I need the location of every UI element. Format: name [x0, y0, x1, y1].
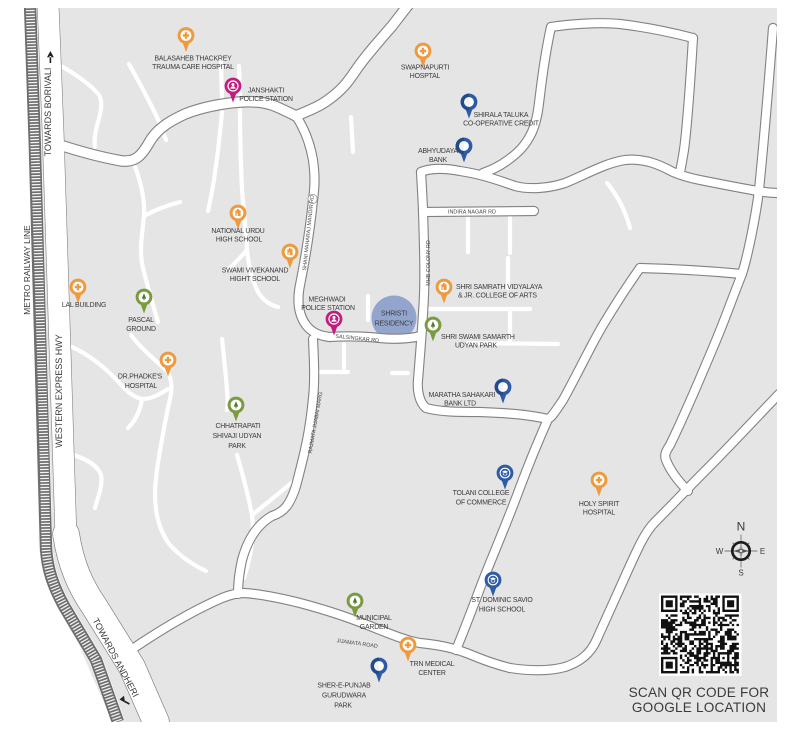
svg-text:SCAN QR CODE FOR: SCAN QR CODE FOR — [629, 685, 770, 700]
svg-text:TRN MEDICAL: TRN MEDICAL — [410, 661, 455, 668]
svg-text:POLICE STATION: POLICE STATION — [301, 305, 355, 312]
svg-text:HOSPITAL: HOSPITAL — [583, 510, 615, 517]
svg-text:HIGHT SCHOOL: HIGHT SCHOOL — [230, 276, 281, 283]
svg-text:SHRI SWAMI SAMARTH: SHRI SWAMI SAMARTH — [441, 334, 515, 341]
svg-text:HOSPTAL: HOSPTAL — [410, 73, 441, 80]
svg-text:PARK: PARK — [228, 443, 246, 450]
svg-text:MHB COLONY RD: MHB COLONY RD — [426, 240, 432, 286]
svg-text:& JR. COLLEGE OF ARTS: & JR. COLLEGE OF ARTS — [458, 293, 537, 300]
svg-text:SWAMI VIVEKANAND: SWAMI VIVEKANAND — [222, 268, 289, 275]
svg-text:SHIRALA TALUKA: SHIRALA TALUKA — [474, 112, 529, 119]
svg-text:DR.PHADKE'S: DR.PHADKE'S — [118, 374, 163, 381]
svg-text:N: N — [737, 520, 746, 534]
svg-text:GOOGLE LOCATION: GOOGLE LOCATION — [632, 700, 766, 715]
svg-text:WESTERN EXPRESS HWY: WESTERN EXPRESS HWY — [54, 334, 64, 448]
svg-text:HOLY SPIRIT: HOLY SPIRIT — [579, 501, 620, 508]
svg-text:RESIDENCY: RESIDENCY — [375, 321, 414, 328]
svg-text:BALASAHEB THACKREY: BALASAHEB THACKREY — [154, 56, 232, 63]
svg-text:GARDEN: GARDEN — [360, 624, 389, 631]
svg-text:JANSHAKTI: JANSHAKTI — [248, 88, 285, 95]
svg-text:BANK: BANK — [429, 157, 448, 164]
svg-text:TOWARDS BORIVALI: TOWARDS BORIVALI — [43, 68, 53, 157]
svg-text:MEGHWADI: MEGHWADI — [309, 297, 346, 304]
svg-text:NATIONAL URDU: NATIONAL URDU — [211, 228, 264, 235]
svg-text:SHRI SAMRATH VIDYALAYA: SHRI SAMRATH VIDYALAYA — [456, 284, 543, 291]
svg-text:GURUDWARA: GURUDWARA — [322, 693, 367, 700]
svg-text:INDIRA NAGAR RD: INDIRA NAGAR RD — [448, 209, 496, 215]
svg-text:SHER-E-PUNJAB: SHER-E-PUNJAB — [317, 683, 371, 690]
svg-text:HOSPITAL: HOSPITAL — [125, 383, 157, 390]
svg-text:PASCAL: PASCAL — [128, 317, 154, 324]
svg-text:SWAPNAPURTI: SWAPNAPURTI — [401, 65, 449, 72]
svg-text:SHRISTI: SHRISTI — [381, 311, 407, 318]
svg-text:CENTER: CENTER — [418, 670, 445, 677]
svg-text:E: E — [760, 547, 765, 556]
svg-text:ST. DOMINIC SAVIO: ST. DOMINIC SAVIO — [471, 597, 533, 604]
svg-text:MUNICIPAL: MUNICIPAL — [356, 615, 392, 622]
svg-text:OF COMMERCE: OF COMMERCE — [456, 500, 507, 507]
svg-text:W: W — [716, 547, 724, 556]
svg-text:POLICE STATION: POLICE STATION — [239, 96, 293, 103]
svg-text:PARK: PARK — [334, 703, 352, 710]
svg-text:METRO RAILWAY LINE: METRO RAILWAY LINE — [22, 225, 32, 315]
svg-text:GROUND: GROUND — [126, 326, 156, 333]
svg-text:TRAUMA CARE HOSPITAL: TRAUMA CARE HOSPITAL — [152, 64, 234, 71]
svg-text:CHHATRAPATI: CHHATRAPATI — [215, 423, 260, 430]
svg-text:HIGH SCHOOL: HIGH SCHOOL — [216, 237, 263, 244]
svg-text:S: S — [738, 569, 743, 578]
svg-text:BANK LTD: BANK LTD — [444, 401, 476, 408]
svg-text:TOLANI COLLEGE: TOLANI COLLEGE — [453, 490, 510, 497]
svg-text:SHIVAJI UDYAN: SHIVAJI UDYAN — [213, 433, 262, 440]
svg-text:CO-OPERATIVE CREDIT: CO-OPERATIVE CREDIT — [463, 121, 540, 128]
svg-text:MARATHA SAHAKARI: MARATHA SAHAKARI — [429, 392, 496, 399]
svg-text:HIGH SCHOOL: HIGH SCHOOL — [479, 607, 526, 614]
svg-text:UDYAN PARK: UDYAN PARK — [455, 343, 498, 350]
svg-text:ABHYUDAYA: ABHYUDAYA — [418, 148, 458, 155]
svg-text:LAL BUILDING: LAL BUILDING — [62, 302, 106, 309]
